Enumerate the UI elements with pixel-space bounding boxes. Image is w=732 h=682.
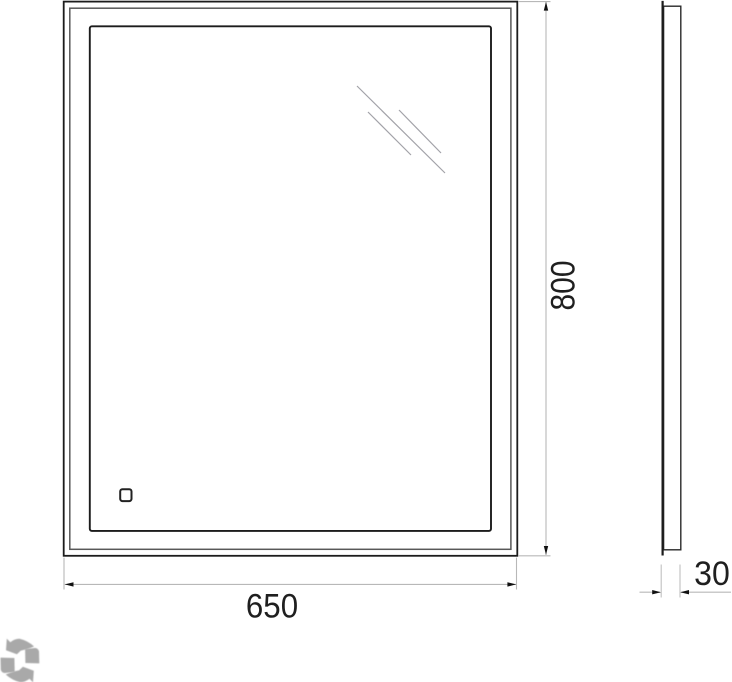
svg-text:650: 650 bbox=[246, 588, 298, 626]
svg-text:800: 800 bbox=[545, 261, 583, 311]
svg-text:30: 30 bbox=[694, 555, 730, 593]
